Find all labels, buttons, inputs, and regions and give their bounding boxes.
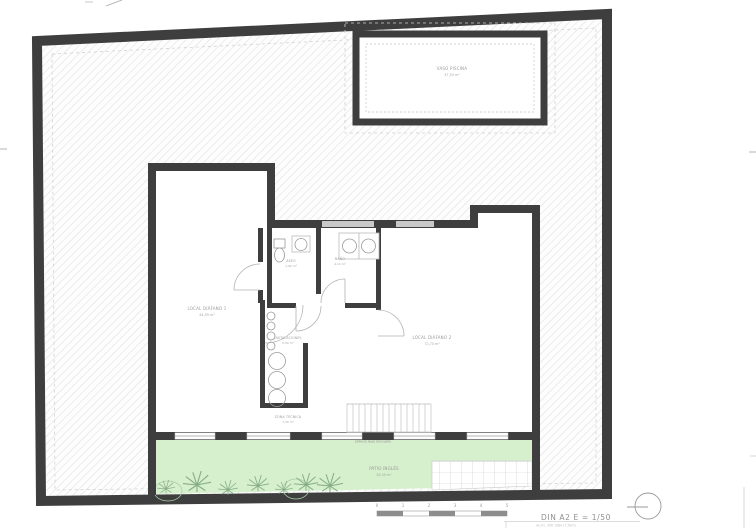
patio-label: PATIO INGLÉS	[369, 466, 399, 471]
scale-tick: 3	[454, 503, 457, 508]
garden-deck-grid	[432, 461, 532, 490]
toilet-tank-icon	[274, 239, 285, 248]
sheet-format-scale: DIN A2 E = 1/50	[541, 513, 611, 522]
bano-label: BAÑO	[335, 256, 345, 261]
under-stairs-note: ESPACIO BAJO ESCALERA	[355, 440, 391, 444]
zona-tecnica-label: ZONA TÉCNICA	[275, 414, 302, 419]
local1-area: 44,95 m²	[199, 313, 215, 317]
instalaciones-label: INSTALACIONES	[274, 336, 301, 340]
graphic-scale: 0 1 2 3 4 5	[376, 503, 509, 516]
scale-tick: 2	[428, 503, 431, 508]
patio-area: 28,50 m²	[376, 473, 392, 477]
scale-tick: 4	[480, 503, 483, 508]
instalaciones-area: 5,50 m²	[282, 341, 295, 345]
local2-area: 72,70 m²	[424, 342, 440, 346]
bano-area: 4,10 m²	[334, 262, 347, 266]
zona-tecnica-area: 7,30 m²	[282, 420, 295, 424]
staircase	[347, 404, 431, 432]
fold-mark	[106, 0, 122, 6]
pool-area: 37,50 m²	[444, 73, 460, 77]
north-indicator-icon	[635, 493, 661, 519]
sink-icon	[362, 239, 376, 253]
pool-basin	[356, 34, 544, 122]
local1-label: LOCAL DIÁFANO 1	[188, 306, 227, 311]
local2-label: LOCAL DIÁFANO 2	[413, 335, 452, 340]
floor-plan: VASO PISCINA 37,50 m² PATIO INGLÉS 28,50…	[0, 0, 756, 528]
scale-tick: 0	[376, 503, 379, 508]
sink-icon	[295, 239, 307, 251]
aseo-area: 1,90 m²	[285, 264, 298, 268]
sheet-note: Av.91, 456 1984 (7,5km)	[536, 524, 575, 528]
scale-tick: 1	[402, 503, 405, 508]
sink-icon	[343, 239, 357, 253]
pool: VASO PISCINA 37,50 m²	[345, 23, 555, 133]
drawing-sheet: VASO PISCINA 37,50 m² PATIO INGLÉS 28,50…	[0, 0, 756, 528]
pool-label: VASO PISCINA	[437, 66, 467, 71]
aseo-label: ASEO	[286, 259, 296, 263]
scale-tick: 5	[506, 503, 509, 508]
toilet-bowl-icon	[275, 248, 285, 262]
